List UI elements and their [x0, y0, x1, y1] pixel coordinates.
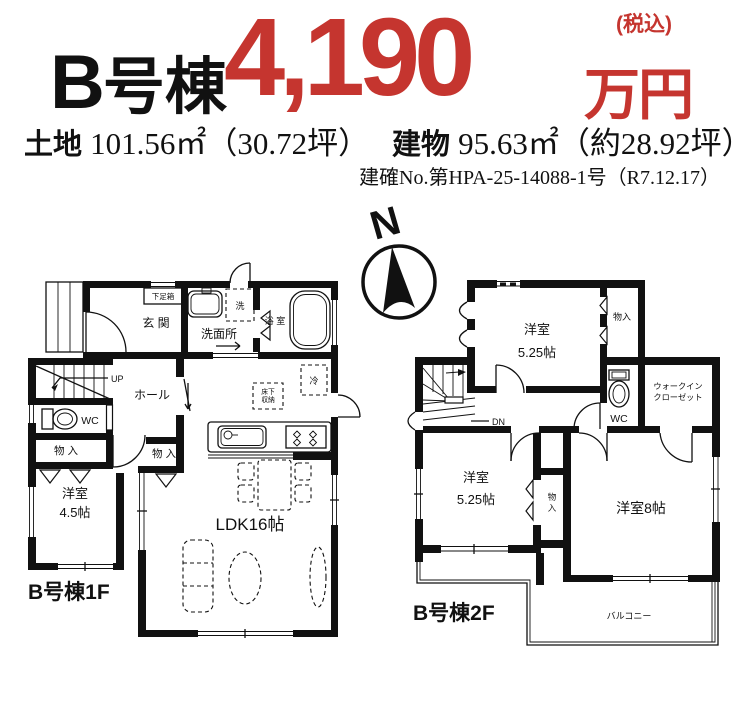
label-storage-mid2f-1: 物 — [548, 492, 557, 502]
sofa-icon — [183, 540, 213, 612]
label-storage-left: 物 入 — [54, 444, 78, 457]
land-value: 101.56㎡（30.72坪） — [90, 126, 369, 161]
bathtub-icon — [290, 291, 330, 349]
caption-1f: B号棟1F — [28, 580, 110, 604]
label-up: UP — [111, 374, 124, 384]
label-bath: 浴 室 — [265, 315, 286, 326]
label-hall: ホール — [134, 388, 170, 402]
label-room-top-size: 5.25帖 — [518, 345, 556, 360]
price-value: 4,190 — [224, 0, 469, 121]
stairs-1f-icon — [36, 365, 110, 399]
entrance-porch — [46, 282, 83, 352]
confirmation-number: 建確No.第HPA-25-14088-1号（R7.12.17） — [359, 161, 720, 190]
label-laundry: 洗 — [235, 300, 244, 311]
label-fridge: 冷 — [309, 375, 318, 386]
label-room-top-name: 洋室 — [524, 322, 550, 337]
floor-plan-1f: 下足箱 玄 関 洗 洗面所 浴 室 UP ホール WC 物 入 物 入 洋室 4… — [18, 225, 364, 653]
sink-icon — [188, 288, 222, 317]
land-label: 土地 — [24, 129, 82, 161]
building-area-line: 建物 95.63㎡（約28.92坪） — [392, 118, 742, 163]
label-washroom: 洗面所 — [201, 327, 237, 341]
label-room-right: 洋室8帖 — [616, 500, 666, 516]
north-label: N — [365, 198, 405, 248]
label-storage-mid: 物 入 — [152, 447, 176, 460]
label-wc-2f: WC — [610, 413, 628, 425]
label-ldk: LDK16帖 — [216, 515, 285, 534]
toilet-2f-icon — [609, 370, 629, 407]
building-suffix: 号棟 — [103, 53, 227, 122]
caption-2f: B号棟2F — [413, 601, 495, 625]
label-wic-1: ウォークイン — [653, 382, 702, 391]
tax-note: (税込) — [616, 8, 672, 38]
label-storage-top: 物入 — [613, 311, 631, 322]
dining-set-icon — [238, 460, 311, 510]
building-name: B号棟 — [50, 36, 227, 126]
floor-plan-2f: 洋室 5.25帖 物入 DN WC ウォークイン クローゼット 洋室 5.25帖… — [396, 272, 726, 657]
label-wc-1f: WC — [81, 415, 99, 427]
building-value: 95.63㎡（約28.92坪） — [458, 126, 742, 161]
building-label: 建物 — [392, 129, 450, 161]
label-balcony: バルコニー — [607, 611, 652, 621]
plant-icon — [310, 547, 326, 607]
label-storage-mid2f-2: 入 — [548, 503, 557, 513]
walls-2f — [415, 280, 720, 585]
label-room-1f-size: 4.5帖 — [59, 505, 90, 520]
toilet-icon — [42, 409, 77, 429]
label-room-left-name: 洋室 — [463, 470, 489, 485]
label-genkan: 玄 関 — [142, 315, 169, 330]
coffee-table-icon — [229, 552, 261, 604]
label-room-left-size: 5.25帖 — [457, 492, 495, 507]
kitchen-counter-icon — [208, 422, 331, 460]
label-underfloor-1: 床下 — [261, 387, 275, 396]
building-letter: B — [50, 40, 103, 125]
label-room-1f-name: 洋室 — [62, 486, 88, 501]
label-dn: DN — [492, 417, 505, 427]
land-area-line: 土地 101.56㎡（30.72坪） — [24, 118, 369, 163]
label-underfloor-2: 収納 — [261, 395, 275, 404]
underfloor-storage-icon — [253, 383, 283, 409]
label-getabako: 下足箱 — [152, 291, 175, 301]
label-wic-2: クローゼット — [653, 392, 702, 402]
